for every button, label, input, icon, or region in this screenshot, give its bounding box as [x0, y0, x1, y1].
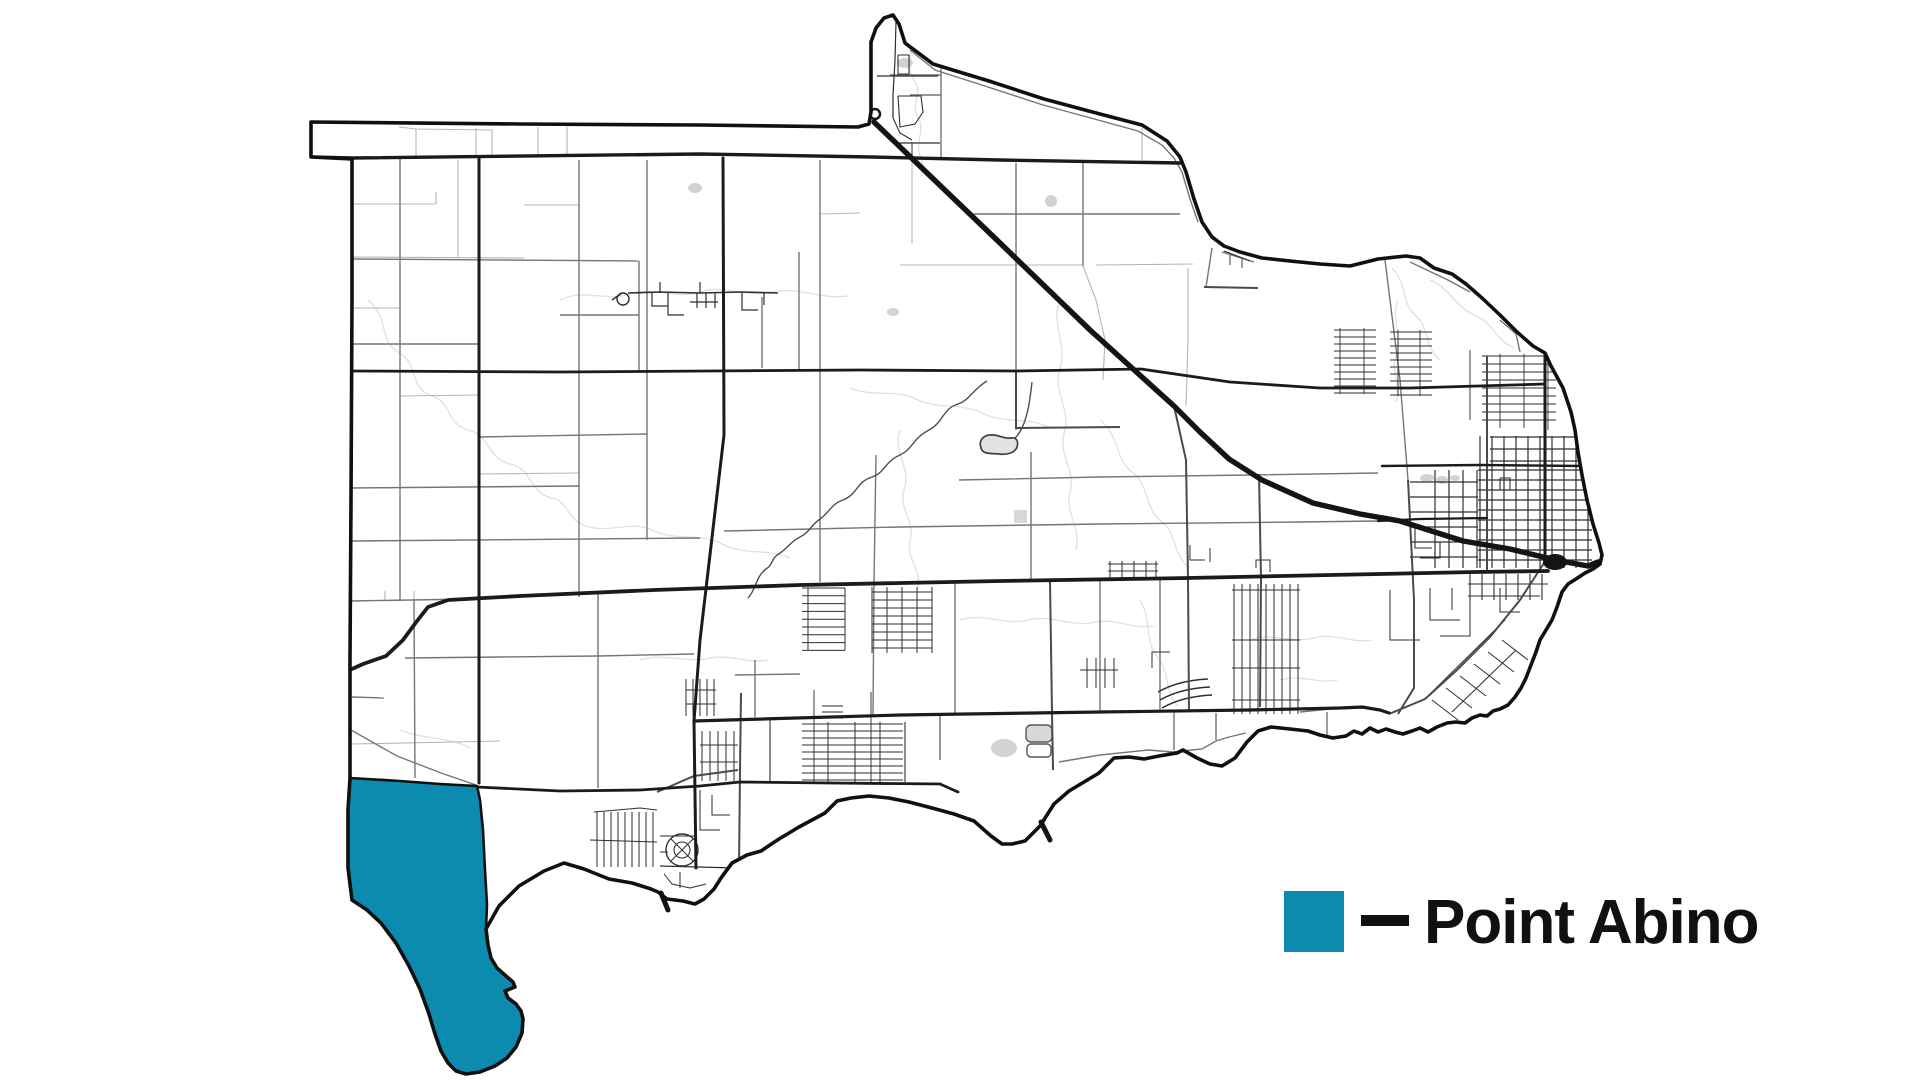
- svg-text:Point Abino: Point Abino: [1424, 888, 1759, 957]
